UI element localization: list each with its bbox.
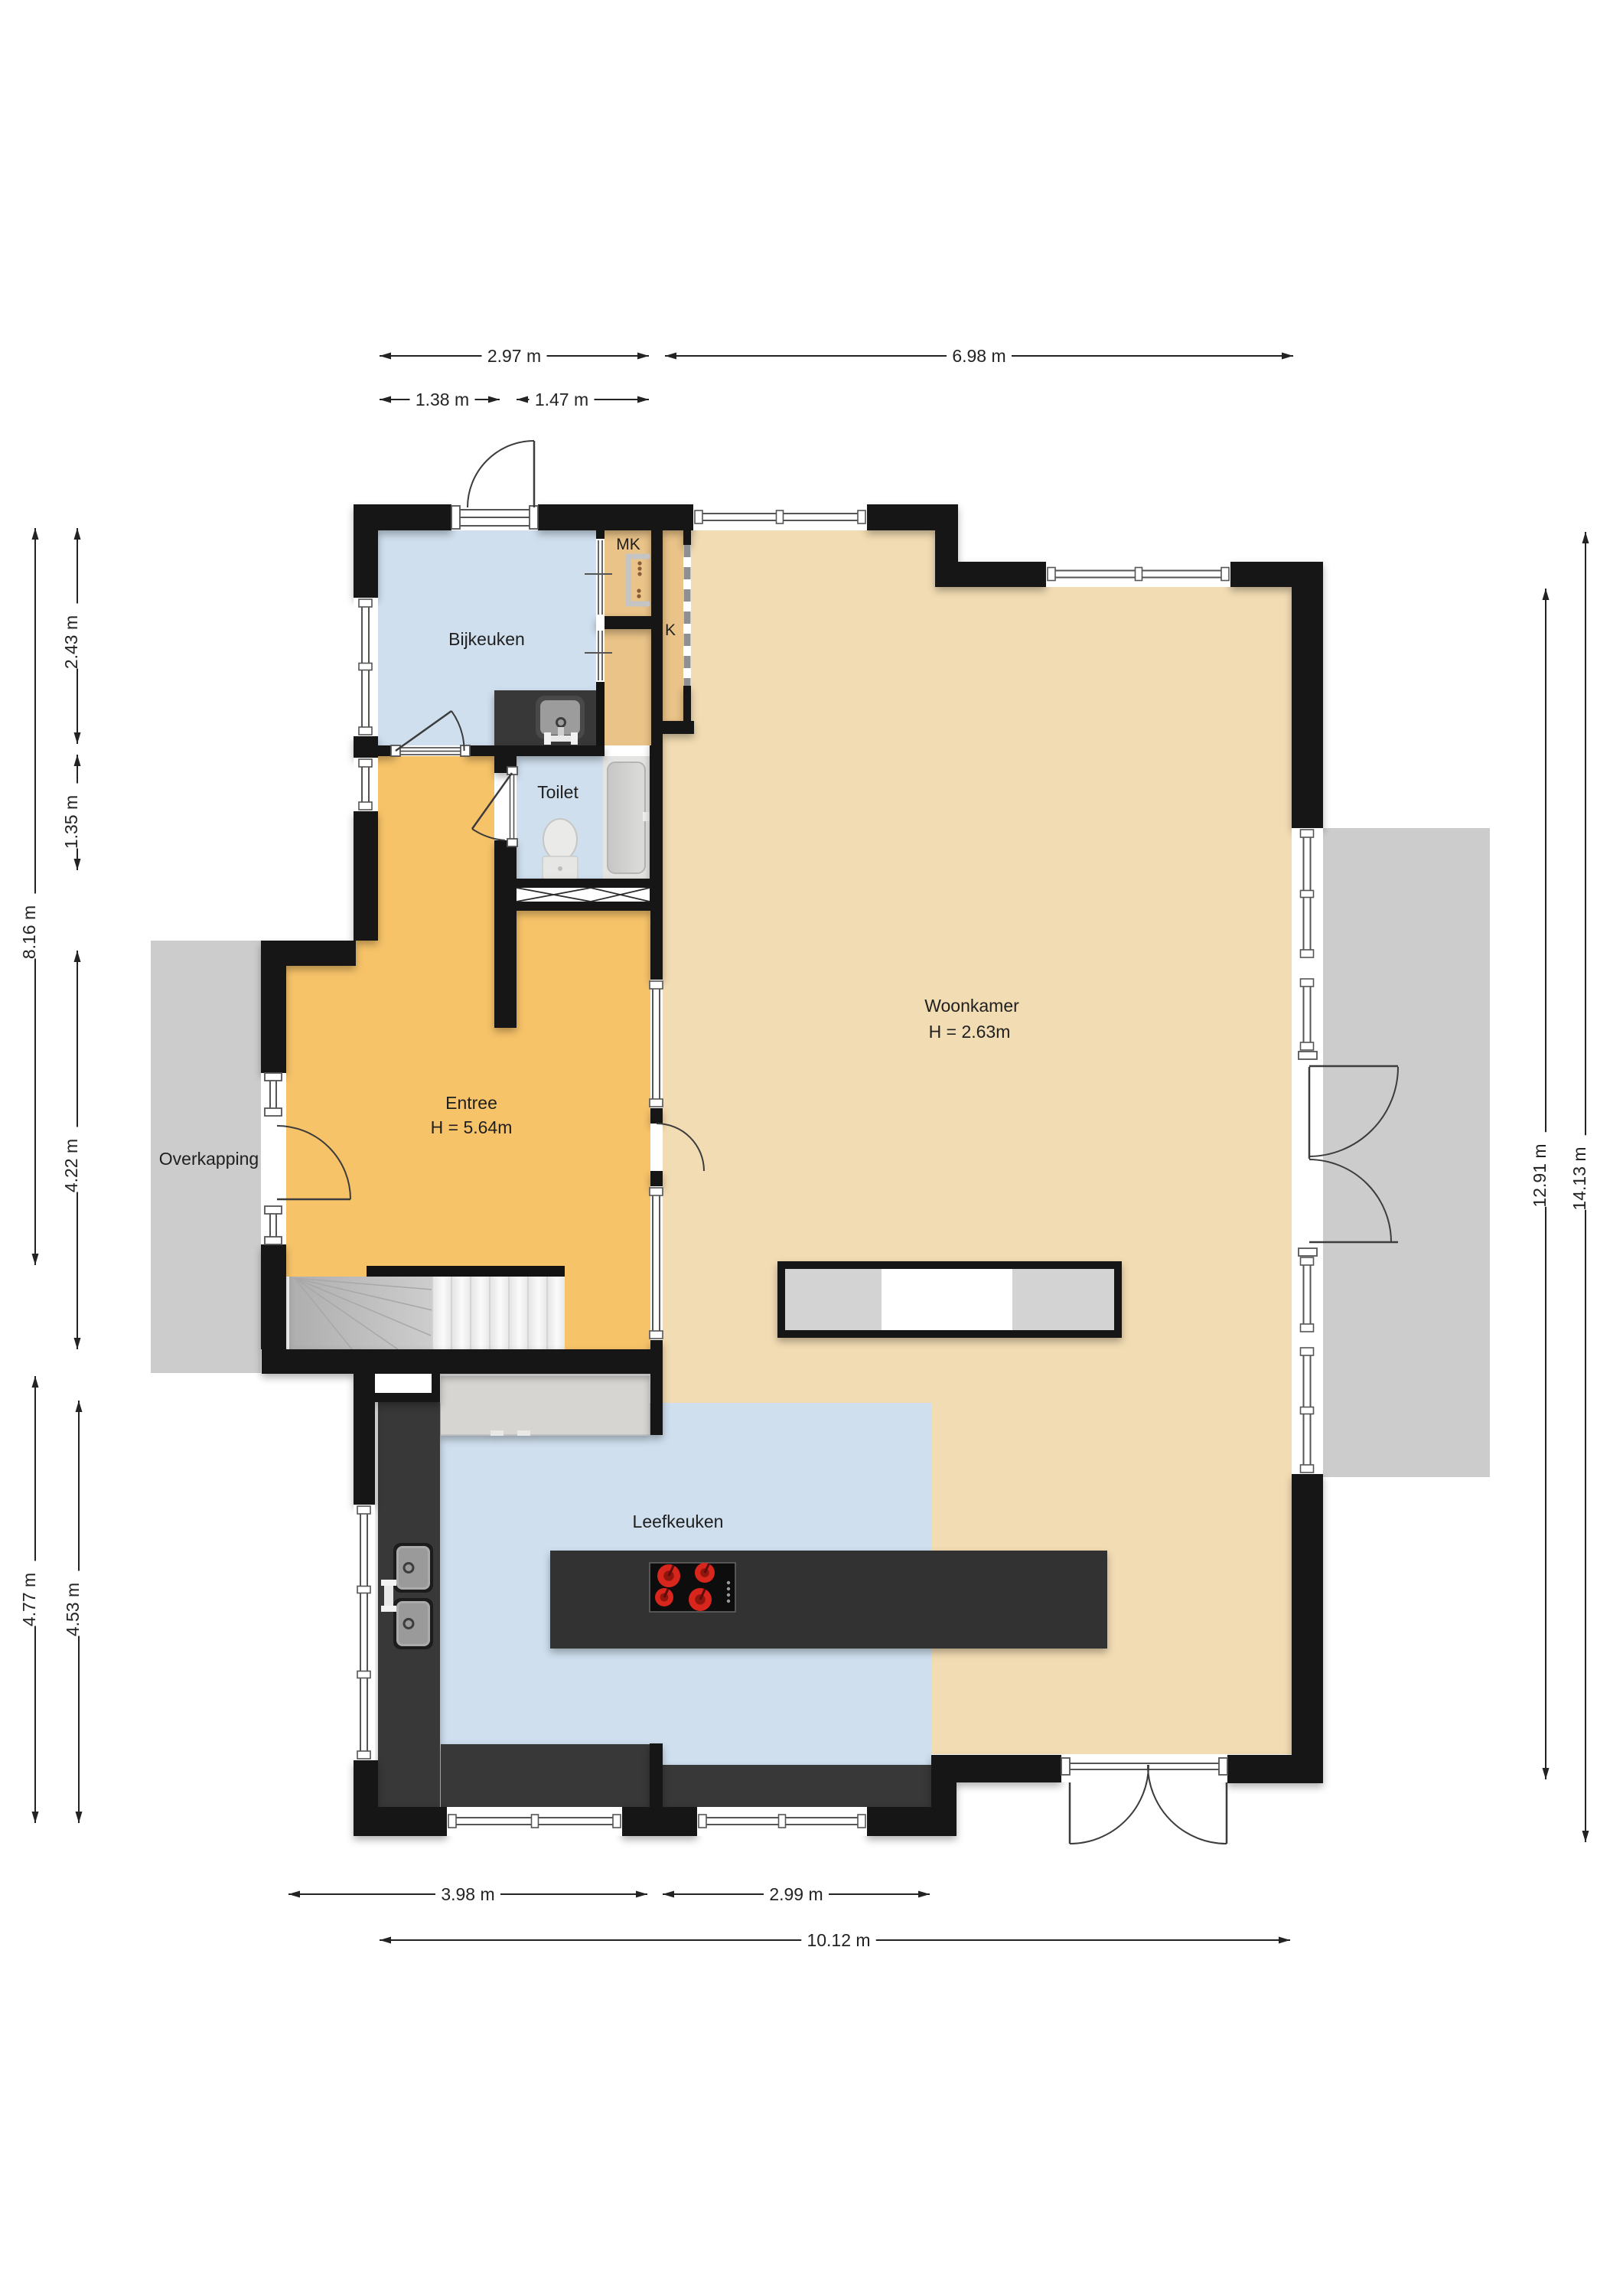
- svg-text:4.53 m: 4.53 m: [63, 1583, 83, 1636]
- svg-text:Overkapping: Overkapping: [159, 1149, 259, 1169]
- svg-text:10.12 m: 10.12 m: [807, 1930, 870, 1950]
- svg-text:Woonkamer: Woonkamer: [924, 996, 1019, 1016]
- svg-text:1.47 m: 1.47 m: [535, 390, 588, 409]
- svg-text:2.97 m: 2.97 m: [487, 346, 541, 366]
- svg-text:K: K: [665, 621, 676, 639]
- svg-text:Toilet: Toilet: [537, 782, 578, 802]
- svg-text:2.99 m: 2.99 m: [769, 1884, 823, 1904]
- svg-text:12.91 m: 12.91 m: [1530, 1143, 1550, 1207]
- svg-text:14.13 m: 14.13 m: [1569, 1146, 1589, 1210]
- svg-text:3.98 m: 3.98 m: [441, 1884, 494, 1904]
- svg-text:Bijkeuken: Bijkeuken: [448, 629, 525, 649]
- svg-text:6.98 m: 6.98 m: [952, 346, 1005, 366]
- svg-text:4.77 m: 4.77 m: [19, 1573, 39, 1626]
- svg-text:1.35 m: 1.35 m: [61, 795, 81, 849]
- svg-text:1.38 m: 1.38 m: [416, 390, 469, 409]
- svg-text:MK: MK: [616, 536, 640, 553]
- svg-text:H = 2.63m: H = 2.63m: [929, 1022, 1011, 1042]
- svg-text:4.22 m: 4.22 m: [61, 1139, 81, 1192]
- svg-text:Leefkeuken: Leefkeuken: [633, 1512, 724, 1531]
- svg-text:8.16 m: 8.16 m: [19, 905, 39, 959]
- svg-text:Entree: Entree: [445, 1093, 497, 1113]
- svg-text:2.43 m: 2.43 m: [61, 615, 81, 669]
- svg-text:H = 5.64m: H = 5.64m: [431, 1117, 513, 1137]
